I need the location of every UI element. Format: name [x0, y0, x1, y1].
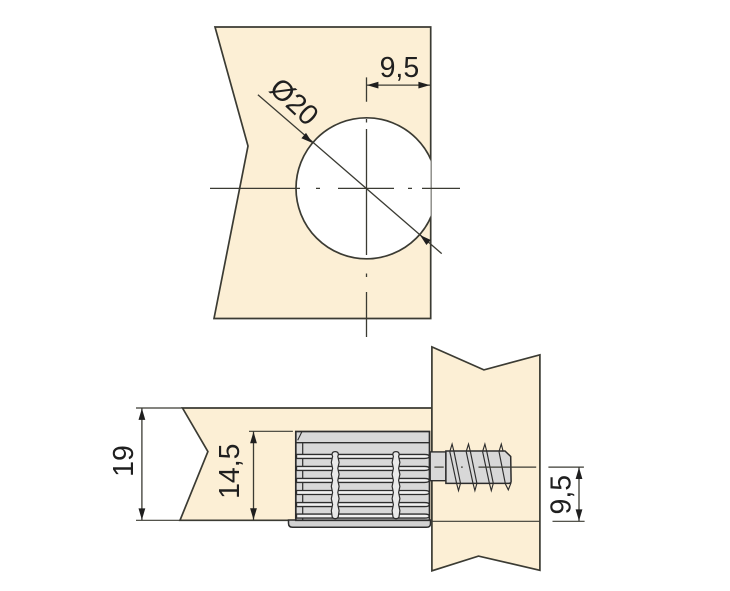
svg-text:9,5: 9,5: [380, 52, 420, 84]
svg-text:19: 19: [108, 445, 140, 477]
svg-text:9,5: 9,5: [546, 475, 578, 515]
svg-text:14,5: 14,5: [214, 443, 246, 498]
